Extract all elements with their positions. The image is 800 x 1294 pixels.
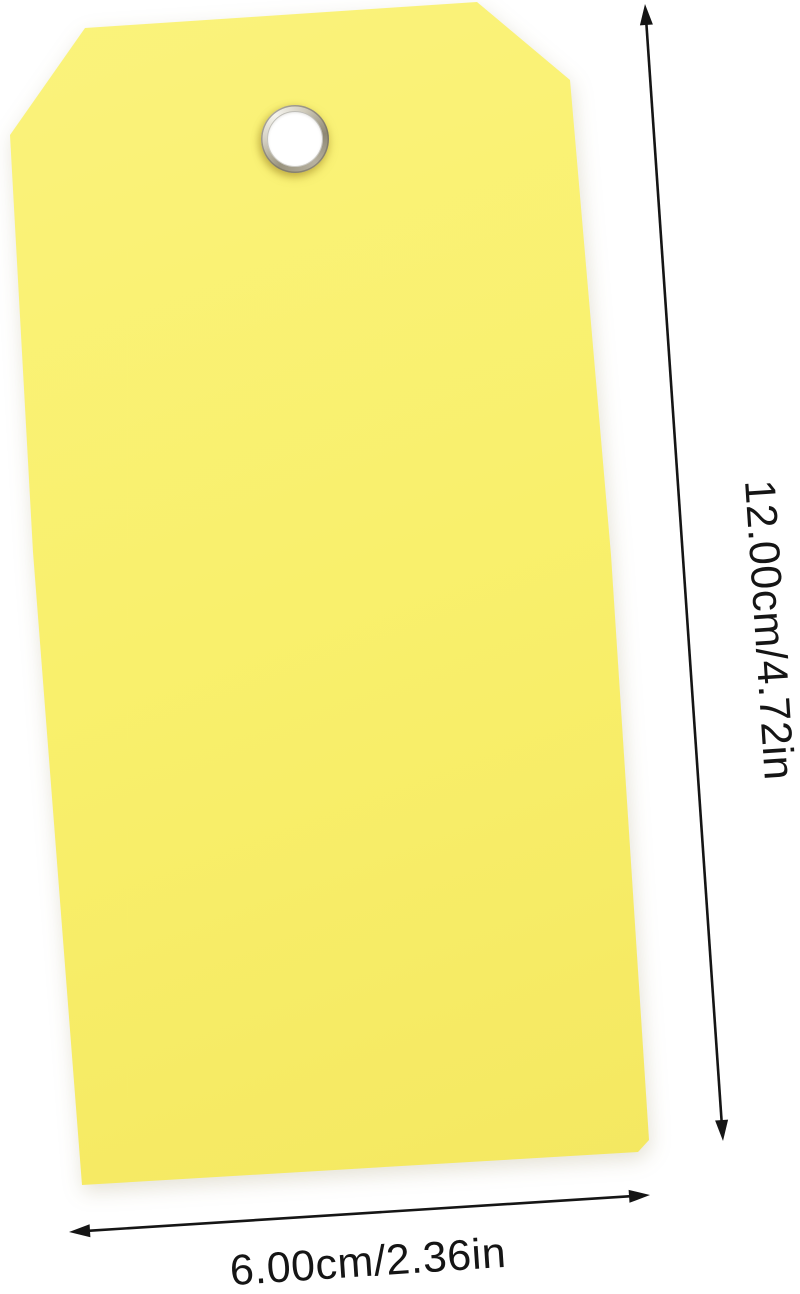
yellow-tag — [0, 0, 800, 1294]
yellow-tag-wrap — [0, 0, 800, 1294]
grommet-hole — [267, 111, 323, 167]
product-dimension-image: 12.00cm/4.72in 6.00cm/2.36in — [0, 0, 800, 1294]
grommet-eyelet — [261, 105, 329, 173]
